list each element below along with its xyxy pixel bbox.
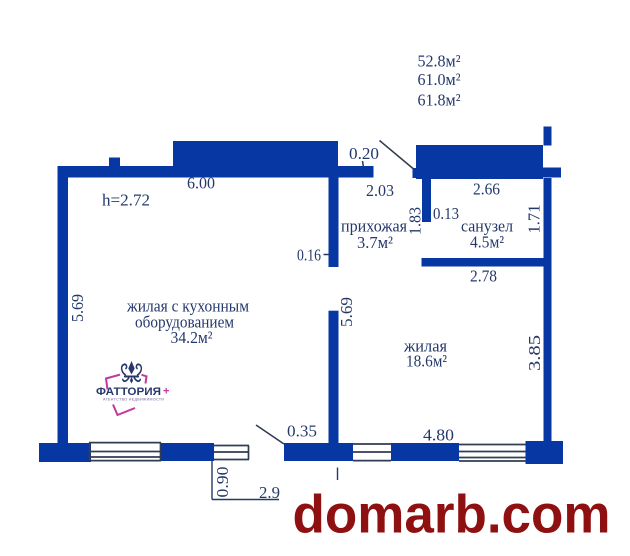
svg-text:3.7м²: 3.7м² xyxy=(357,233,393,252)
svg-text:2.9: 2.9 xyxy=(259,483,280,502)
svg-text:34.2м²: 34.2м² xyxy=(171,328,213,347)
svg-text:0.90: 0.90 xyxy=(213,467,232,498)
svg-text:61.0м²: 61.0м² xyxy=(418,70,461,89)
svg-text:61.8м²: 61.8м² xyxy=(418,91,461,110)
svg-text:0.35: 0.35 xyxy=(287,422,317,441)
svg-text:6.00: 6.00 xyxy=(187,174,215,193)
svg-text:0.16: 0.16 xyxy=(297,246,321,265)
svg-text:1.71: 1.71 xyxy=(525,205,544,234)
svg-text:ФАТТОРИЯ: ФАТТОРИЯ xyxy=(96,386,161,398)
svg-text:5.69: 5.69 xyxy=(68,294,87,322)
svg-text:18.6м²: 18.6м² xyxy=(406,352,447,371)
svg-text:0.13: 0.13 xyxy=(433,204,459,223)
svg-text:2.03: 2.03 xyxy=(366,181,394,200)
svg-text:0.20: 0.20 xyxy=(349,144,379,163)
svg-text:5.69: 5.69 xyxy=(337,297,356,327)
svg-text:3.85: 3.85 xyxy=(525,335,544,371)
svg-text:1.83: 1.83 xyxy=(406,207,425,235)
svg-text:domarb.com: domarb.com xyxy=(293,485,611,545)
svg-text:52.8м²: 52.8м² xyxy=(418,52,461,71)
svg-text:4.5м²: 4.5м² xyxy=(470,233,504,252)
svg-text:4.80: 4.80 xyxy=(423,426,454,445)
svg-text:2.66: 2.66 xyxy=(473,180,500,199)
svg-text:2.78: 2.78 xyxy=(470,267,497,286)
svg-text:h=2.72: h=2.72 xyxy=(102,191,150,210)
svg-text:+: + xyxy=(163,386,169,398)
svg-text:АГЕНТСТВО НЕДВИЖИМОСТИ: АГЕНТСТВО НЕДВИЖИМОСТИ xyxy=(103,398,164,402)
